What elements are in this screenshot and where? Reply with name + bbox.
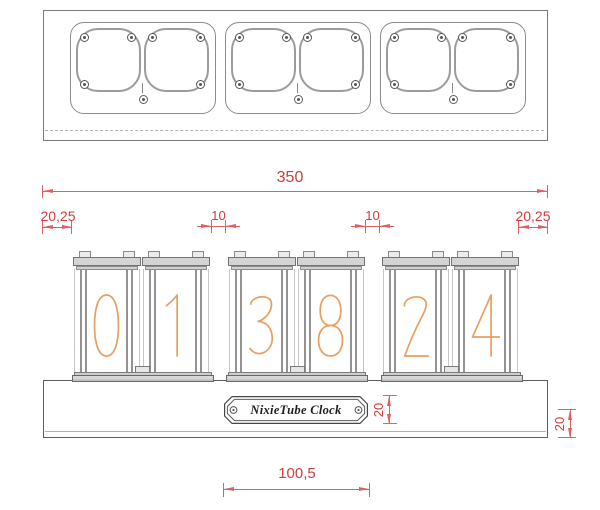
glass-edge	[74, 269, 75, 373]
screw-icon	[437, 33, 446, 42]
vent-mark	[297, 83, 298, 93]
glass-edge	[448, 269, 449, 373]
dim-label: 10	[203, 209, 234, 222]
support-rod	[355, 269, 357, 373]
glass-edge	[517, 269, 518, 373]
screw-icon	[196, 33, 205, 42]
screw-icon	[127, 33, 136, 42]
support-rod	[281, 269, 283, 373]
dim-label: 350	[262, 170, 318, 186]
name-plate-label: NixieTube Clock	[224, 396, 368, 424]
drawing-sheet: NixieTube Clock	[0, 0, 600, 510]
panel-fold-dashed-line	[45, 130, 544, 131]
support-rod	[389, 269, 391, 373]
nixie-tube-1	[74, 251, 140, 382]
support-rod	[440, 269, 442, 373]
screw-icon	[148, 33, 157, 42]
dim-label: 10	[357, 209, 388, 222]
vent-hole	[139, 95, 148, 104]
socket-module-top-2	[225, 22, 371, 114]
glass-edge	[452, 269, 453, 373]
support-rod	[85, 269, 87, 373]
module-plate-base	[72, 375, 214, 382]
screw-icon	[351, 80, 360, 89]
support-rod	[154, 269, 156, 373]
name-plate: NixieTube Clock	[224, 396, 368, 424]
screw-icon	[235, 33, 244, 42]
base-groove-line	[45, 431, 546, 432]
vent-hole	[294, 95, 303, 104]
nixie-tube-5	[383, 251, 449, 382]
tube-top-cap	[297, 257, 365, 266]
support-rod	[240, 269, 242, 373]
nixie-tube-4	[298, 251, 364, 382]
screw-icon	[80, 33, 89, 42]
glass-edge	[208, 269, 209, 373]
support-rod	[126, 269, 128, 373]
tube-top-cap	[73, 257, 141, 266]
tube-top-cap	[451, 257, 519, 266]
screw-icon	[80, 80, 89, 89]
dim-label: 20,25	[510, 209, 556, 223]
screw-icon	[235, 80, 244, 89]
support-rod	[235, 269, 237, 373]
support-rod	[286, 269, 288, 373]
screw-icon	[458, 33, 467, 42]
nixie-tube-2	[143, 251, 209, 382]
screw-icon	[390, 80, 399, 89]
nixie-tube-6	[452, 251, 518, 382]
dim-label: 20	[553, 410, 567, 438]
support-rod	[309, 269, 311, 373]
tube-top-cap	[142, 257, 210, 266]
support-rod	[195, 269, 197, 373]
nixie-digit	[245, 286, 278, 365]
support-rod	[394, 269, 396, 373]
glass-edge	[229, 269, 230, 373]
support-rod	[80, 269, 82, 373]
socket-module-top-1	[70, 22, 216, 114]
tube-top-cap	[228, 257, 296, 266]
screw-icon	[196, 80, 205, 89]
support-rod	[509, 269, 511, 373]
tube-top-cap	[382, 257, 450, 266]
screw-icon	[282, 33, 291, 42]
dim-label: 20	[372, 396, 386, 424]
dim-label: 20,25	[36, 209, 80, 223]
glass-edge	[294, 269, 295, 373]
glass-edge	[143, 269, 144, 373]
screw-icon	[351, 33, 360, 42]
screw-icon	[506, 33, 515, 42]
nixie-digit	[159, 286, 192, 365]
screw-icon	[390, 33, 399, 42]
support-rod	[463, 269, 465, 373]
socket-module-top-3	[380, 22, 526, 114]
support-rod	[149, 269, 151, 373]
glass-edge	[363, 269, 364, 373]
screw-icon	[303, 33, 312, 42]
vent-hole	[449, 95, 458, 104]
support-rod	[458, 269, 460, 373]
support-rod	[435, 269, 437, 373]
nixie-digit	[90, 286, 123, 365]
dim-label: 100,5	[256, 466, 338, 481]
vent-mark	[142, 83, 143, 93]
glass-edge	[139, 269, 140, 373]
support-rod	[131, 269, 133, 373]
nixie-digit	[468, 286, 501, 365]
nixie-tube-3	[229, 251, 295, 382]
module-plate-base	[226, 375, 368, 382]
nixie-digit	[399, 286, 432, 365]
glass-edge	[383, 269, 384, 373]
glass-edge	[298, 269, 299, 373]
nixie-digit	[314, 286, 347, 365]
screw-icon	[506, 80, 515, 89]
support-rod	[304, 269, 306, 373]
vent-mark	[452, 83, 453, 93]
support-rod	[350, 269, 352, 373]
support-rod	[200, 269, 202, 373]
support-rod	[504, 269, 506, 373]
module-plate-base	[381, 375, 523, 382]
